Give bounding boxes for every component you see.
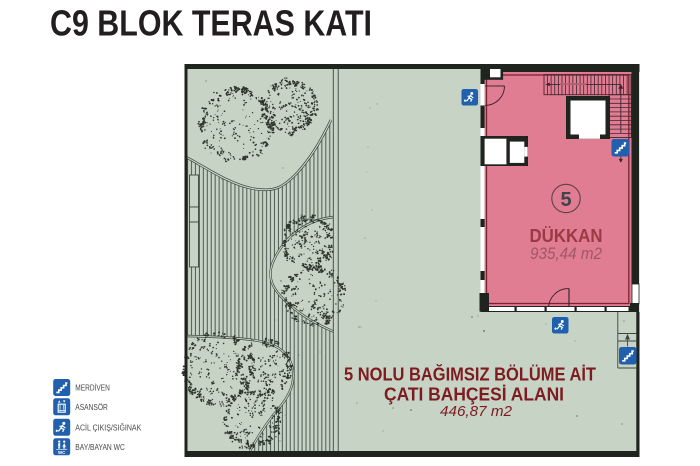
svg-text:935,44 m2: 935,44 m2 — [530, 245, 602, 263]
svg-text:WC: WC — [58, 450, 66, 455]
svg-text:C9 BLOK TERAS KATI: C9 BLOK TERAS KATI — [50, 3, 372, 44]
svg-text:ACİL ÇIKIŞ/SIĞINAK: ACİL ÇIKIŞ/SIĞINAK — [75, 422, 141, 432]
svg-text:BAY/BAYAN WC: BAY/BAYAN WC — [75, 442, 125, 452]
svg-text:DÜKKAN: DÜKKAN — [530, 225, 603, 246]
svg-text:5: 5 — [560, 189, 571, 211]
svg-text:ÇATI BAHÇESİ ALANI: ÇATI BAHÇESİ ALANI — [384, 383, 564, 404]
svg-text:ASANSÖR: ASANSÖR — [75, 402, 108, 412]
svg-text:446,87 m2: 446,87 m2 — [440, 403, 513, 420]
svg-text:5 NOLU BAĞIMSIZ BÖLÜME AİT: 5 NOLU BAĞIMSIZ BÖLÜME AİT — [344, 363, 597, 384]
svg-text:MERDİVEN: MERDİVEN — [75, 383, 110, 393]
